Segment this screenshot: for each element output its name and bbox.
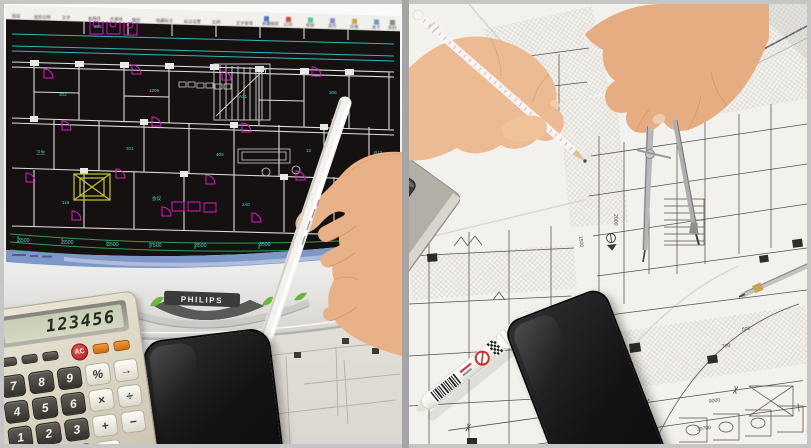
orange-key [92, 342, 109, 354]
calc-key-8: 8 [28, 369, 55, 394]
blueprint-dimension-label: 500 [741, 326, 751, 333]
blueprint-dimension-label: 700 [721, 343, 731, 350]
memory-key [4, 356, 17, 367]
photo-collage-frame: 图层图形边框文字画直线任意线圆形隐藏标注标注设置比例文字查找屏幕缩放打印帮助变形… [0, 0, 811, 448]
calc-key-4: 4 [4, 399, 31, 424]
cad-menu-item: 变形 [328, 22, 337, 29]
cad-room-label: 1205 [149, 88, 160, 93]
cad-room-label: 118 [62, 200, 70, 205]
cad-dimension-label: 3500 [259, 242, 271, 248]
blueprint-dimension-label: 1500 [577, 236, 584, 248]
philips-badge: PHILIPS [164, 291, 240, 308]
cad-menu-item: 屏幕缩放 [262, 20, 280, 27]
cad-room-label: 206 [94, 24, 102, 29]
cad-dimension-label: 3500 [195, 243, 207, 249]
calc-key-9: 9 [56, 366, 83, 391]
cad-dimension-label: 3500 [18, 238, 30, 244]
cad-menu-item: 帮助 [306, 22, 314, 29]
calc-key-2: 2 [35, 421, 62, 444]
calc-key-+: + [91, 413, 118, 438]
smartphone-on-desk [141, 327, 286, 444]
cad-menu-item: 比例 [212, 19, 220, 26]
cad-room-label: 306 [329, 90, 337, 95]
cad-menu-item: 打印 [284, 21, 292, 28]
calculator: 123456 AC 789%→456×÷123+−000.= [4, 290, 159, 444]
calc-key-÷: ÷ [116, 383, 143, 408]
cad-room-label: 240 [242, 202, 250, 207]
cad-room-label: 405 [216, 152, 224, 157]
pencil-eraser [413, 10, 423, 20]
cad-elevator-symbol [74, 174, 110, 200]
cad-room-label: 12 [306, 148, 312, 153]
right-photo-blueprint-work: 90003070020001500500700 014 [409, 4, 807, 444]
photo-divider [402, 0, 409, 448]
cad-dimension-label: 3500 [107, 242, 119, 248]
calc-key-3: 3 [63, 417, 90, 442]
calculator-keypad: 789%→456×÷123+−000.= [4, 358, 150, 444]
cad-room-label: 会议 [152, 195, 162, 202]
phone-screen-reflection [148, 342, 205, 437]
cad-menu-item: 文字查找 [236, 19, 254, 26]
memory-key [42, 350, 59, 361]
calc-key-7: 7 [4, 373, 27, 398]
calculator-lcd: 123456 [4, 304, 124, 343]
cad-menu-item: 文字 [62, 14, 70, 21]
left-photo-cad-monitor: 图层图形边框文字画直线任意线圆形隐藏标注标注设置比例文字查找屏幕缩放打印帮助变形… [4, 4, 402, 444]
calc-key-×: × [88, 387, 115, 412]
calc-key-=: = [95, 439, 122, 444]
calc-key-−: − [120, 409, 147, 434]
ac-key: AC [70, 342, 89, 361]
calc-key-.: . [67, 443, 94, 444]
cad-menu-item: 隐藏标注 [156, 17, 174, 24]
cad-menu-item: 资料 [388, 24, 397, 31]
blueprint-dimension-label: 2000 [612, 214, 618, 226]
cad-menu-item: 风格 [350, 23, 359, 30]
calc-key-1: 1 [7, 425, 34, 444]
calc-key-→: → [112, 358, 139, 383]
philips-brand-text: PHILIPS [181, 295, 224, 305]
cad-menu-item: 关于 [372, 24, 380, 31]
orange-key [113, 339, 130, 351]
cad-dimension-label: 7500 [150, 243, 162, 249]
cad-menu-item: 圆形 [132, 16, 141, 23]
cad-dimension-label: 3500 [62, 240, 74, 246]
pencil-graphite [583, 159, 586, 162]
cad-room-label: 卫生 [36, 149, 46, 155]
cad-menu-item: 标注设置 [184, 18, 201, 25]
cad-room-label: A21 [239, 94, 248, 99]
memory-key [21, 353, 38, 364]
cad-menu-item: 图形边框 [34, 13, 52, 20]
calc-key-%: % [84, 362, 111, 387]
cad-room-label: 201 [126, 146, 134, 151]
cad-room-label: 302 [59, 92, 67, 97]
calc-key-6: 6 [60, 391, 87, 416]
calc-key-5: 5 [32, 395, 59, 420]
